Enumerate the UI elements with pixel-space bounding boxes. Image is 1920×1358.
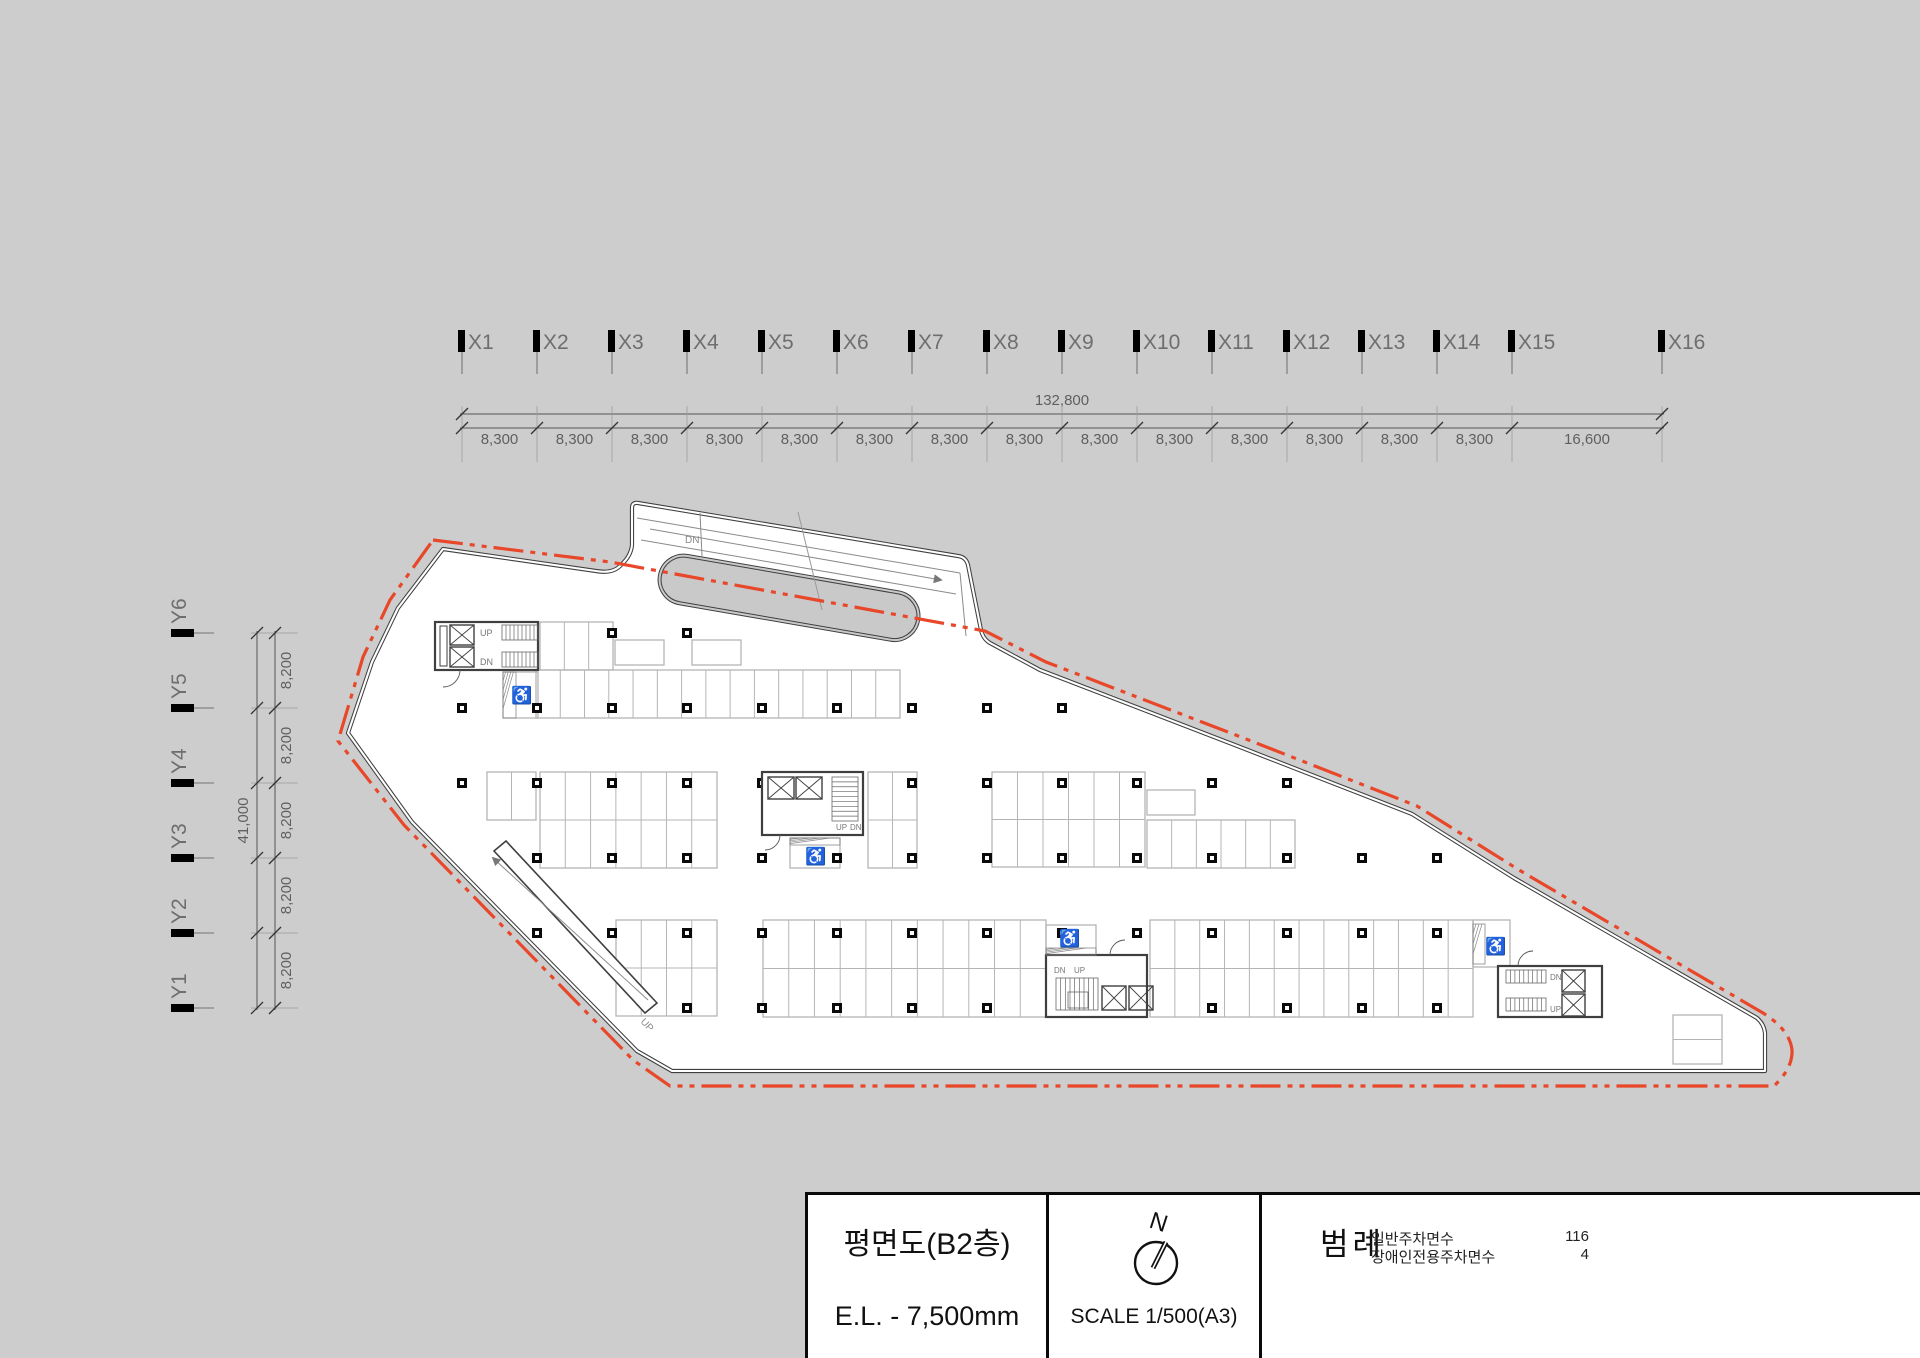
y-grid-label: Y6: [168, 598, 191, 624]
accessible-parking-icon: ♿: [805, 846, 826, 866]
column: [607, 778, 617, 788]
column: [907, 1003, 917, 1013]
scale-label: SCALE 1/500(A3): [1049, 1305, 1259, 1329]
core-direction-label: DN: [480, 657, 493, 667]
title-block-divider: [1259, 1195, 1262, 1358]
y-segment-dimension: 8,200: [278, 877, 295, 915]
x-segment-dimension: 8,300: [1306, 431, 1344, 448]
column: [1282, 928, 1292, 938]
y-grid-label: Y3: [168, 823, 191, 849]
column: [607, 703, 617, 713]
y-segment-dimension: 8,200: [278, 952, 295, 990]
x-grid-label: X9: [1068, 331, 1094, 354]
y-grid-label: Y2: [168, 898, 191, 924]
column: [907, 853, 917, 863]
floor-plan-canvas: UPDN♿UPDN♿DNUP♿DNUP♿ X1X2X3X4X5X6X7X8X9X…: [0, 0, 1920, 1358]
x-grid-label: X16: [1668, 331, 1705, 354]
column: [607, 928, 617, 938]
column: [832, 853, 842, 863]
x-grid-label: X5: [768, 331, 794, 354]
y-total-dimension: 41,000: [235, 798, 252, 844]
column: [1357, 928, 1367, 938]
x-segment-dimension: 8,300: [481, 431, 519, 448]
column: [1207, 778, 1217, 788]
column: [982, 703, 992, 713]
column: [907, 703, 917, 713]
column: [1282, 853, 1292, 863]
core-direction-label: DN: [850, 823, 862, 832]
y-segment-dimension: 8,200: [278, 727, 295, 765]
column: [682, 703, 692, 713]
x-grid-label: X3: [618, 331, 644, 354]
x-segment-dimension: 8,300: [1081, 431, 1119, 448]
x-grid-label: X6: [843, 331, 869, 354]
column: [682, 628, 692, 638]
column: [1132, 853, 1142, 863]
x-grid-label: X13: [1368, 331, 1405, 354]
column: [1057, 853, 1067, 863]
x-segment-dimension: 8,300: [781, 431, 819, 448]
column: [1057, 778, 1067, 788]
x-segment-dimension: 8,300: [931, 431, 969, 448]
column: [1057, 703, 1067, 713]
column: [982, 1003, 992, 1013]
column: [1357, 1003, 1367, 1013]
column: [1207, 1003, 1217, 1013]
y-grid-label: Y1: [168, 973, 191, 999]
column: [1432, 853, 1442, 863]
column: [457, 778, 467, 788]
x-grid-label: X4: [693, 331, 719, 354]
column: [1132, 778, 1142, 788]
column: [757, 928, 767, 938]
x-segment-dimension: 8,300: [631, 431, 669, 448]
y-grid-label: Y5: [168, 673, 191, 699]
x-grid-label: X2: [543, 331, 569, 354]
core-direction-label: UP: [836, 823, 847, 832]
column: [907, 778, 917, 788]
x-segment-dimension: 8,300: [1231, 431, 1269, 448]
column: [1282, 778, 1292, 788]
column: [757, 703, 767, 713]
x-grid-label: X7: [918, 331, 944, 354]
ramp-dn-label: DN: [685, 535, 699, 546]
column: [907, 928, 917, 938]
core-direction-label: UP: [1074, 966, 1085, 975]
x-segment-dimension: 8,300: [1456, 431, 1494, 448]
accessible-parking-icon: ♿: [1485, 936, 1506, 956]
column: [982, 853, 992, 863]
x-segment-dimension: 8,300: [1381, 431, 1419, 448]
x-segment-dimension: 8,300: [706, 431, 744, 448]
accessible-parking-icon: ♿: [511, 685, 532, 705]
column: [607, 628, 617, 638]
y-segment-dimension: 8,200: [278, 652, 295, 690]
column: [1207, 853, 1217, 863]
north-letter: N: [1146, 1207, 1171, 1238]
column: [757, 853, 767, 863]
x-segment-dimension: 16,600: [1564, 431, 1610, 448]
x-grid-label: X1: [468, 331, 494, 354]
y-segment-dimension: 8,200: [278, 802, 295, 840]
column: [982, 928, 992, 938]
column: [982, 778, 992, 788]
column: [757, 1003, 767, 1013]
column: [682, 778, 692, 788]
x-grid-label: X12: [1293, 331, 1330, 354]
core-direction-label: UP: [1550, 1005, 1561, 1014]
title-block: 평면도(B2층) E.L. - 7,500mm N SCALE 1/500(A3…: [805, 1192, 1920, 1358]
column: [532, 778, 542, 788]
column: [1432, 928, 1442, 938]
x-grid-label: X14: [1443, 331, 1481, 354]
column: [1432, 1003, 1442, 1013]
north-arrow: N: [1118, 1201, 1198, 1297]
column: [1282, 1003, 1292, 1013]
column: [832, 1003, 842, 1013]
legend-item-value: 116: [1371, 1228, 1589, 1245]
core-direction-label: UP: [480, 628, 493, 638]
column: [532, 703, 542, 713]
column: [1132, 928, 1142, 938]
x-segment-dimension: 8,300: [1006, 431, 1044, 448]
x-segment-dimension: 8,300: [556, 431, 594, 448]
column: [607, 853, 617, 863]
y-grid-label: Y4: [168, 748, 191, 774]
column: [1357, 853, 1367, 863]
legend-item-value: 4: [1371, 1246, 1589, 1263]
column: [682, 1003, 692, 1013]
column: [682, 928, 692, 938]
x-grid-label: X8: [993, 331, 1019, 354]
title-block-divider: [1046, 1195, 1049, 1358]
core-direction-label: DN: [1550, 973, 1562, 982]
drawing-title: 평면도(B2층): [808, 1219, 1046, 1263]
x-grid-label: X11: [1218, 331, 1254, 354]
column: [1207, 928, 1217, 938]
x-grid-label: X15: [1518, 331, 1555, 354]
column: [532, 853, 542, 863]
accessible-parking-icon: ♿: [1059, 928, 1080, 948]
column: [532, 928, 542, 938]
column: [682, 853, 692, 863]
x-segment-dimension: 8,300: [1156, 431, 1194, 448]
column: [832, 703, 842, 713]
x-grid-label: X10: [1143, 331, 1180, 354]
core-direction-label: DN: [1054, 966, 1066, 975]
drawing-sheet: UPDN♿UPDN♿DNUP♿DNUP♿ X1X2X3X4X5X6X7X8X9X…: [0, 0, 1920, 1358]
x-segment-dimension: 8,300: [856, 431, 894, 448]
elevation-label: E.L. - 7,500mm: [808, 1301, 1046, 1332]
column: [832, 928, 842, 938]
column: [457, 703, 467, 713]
